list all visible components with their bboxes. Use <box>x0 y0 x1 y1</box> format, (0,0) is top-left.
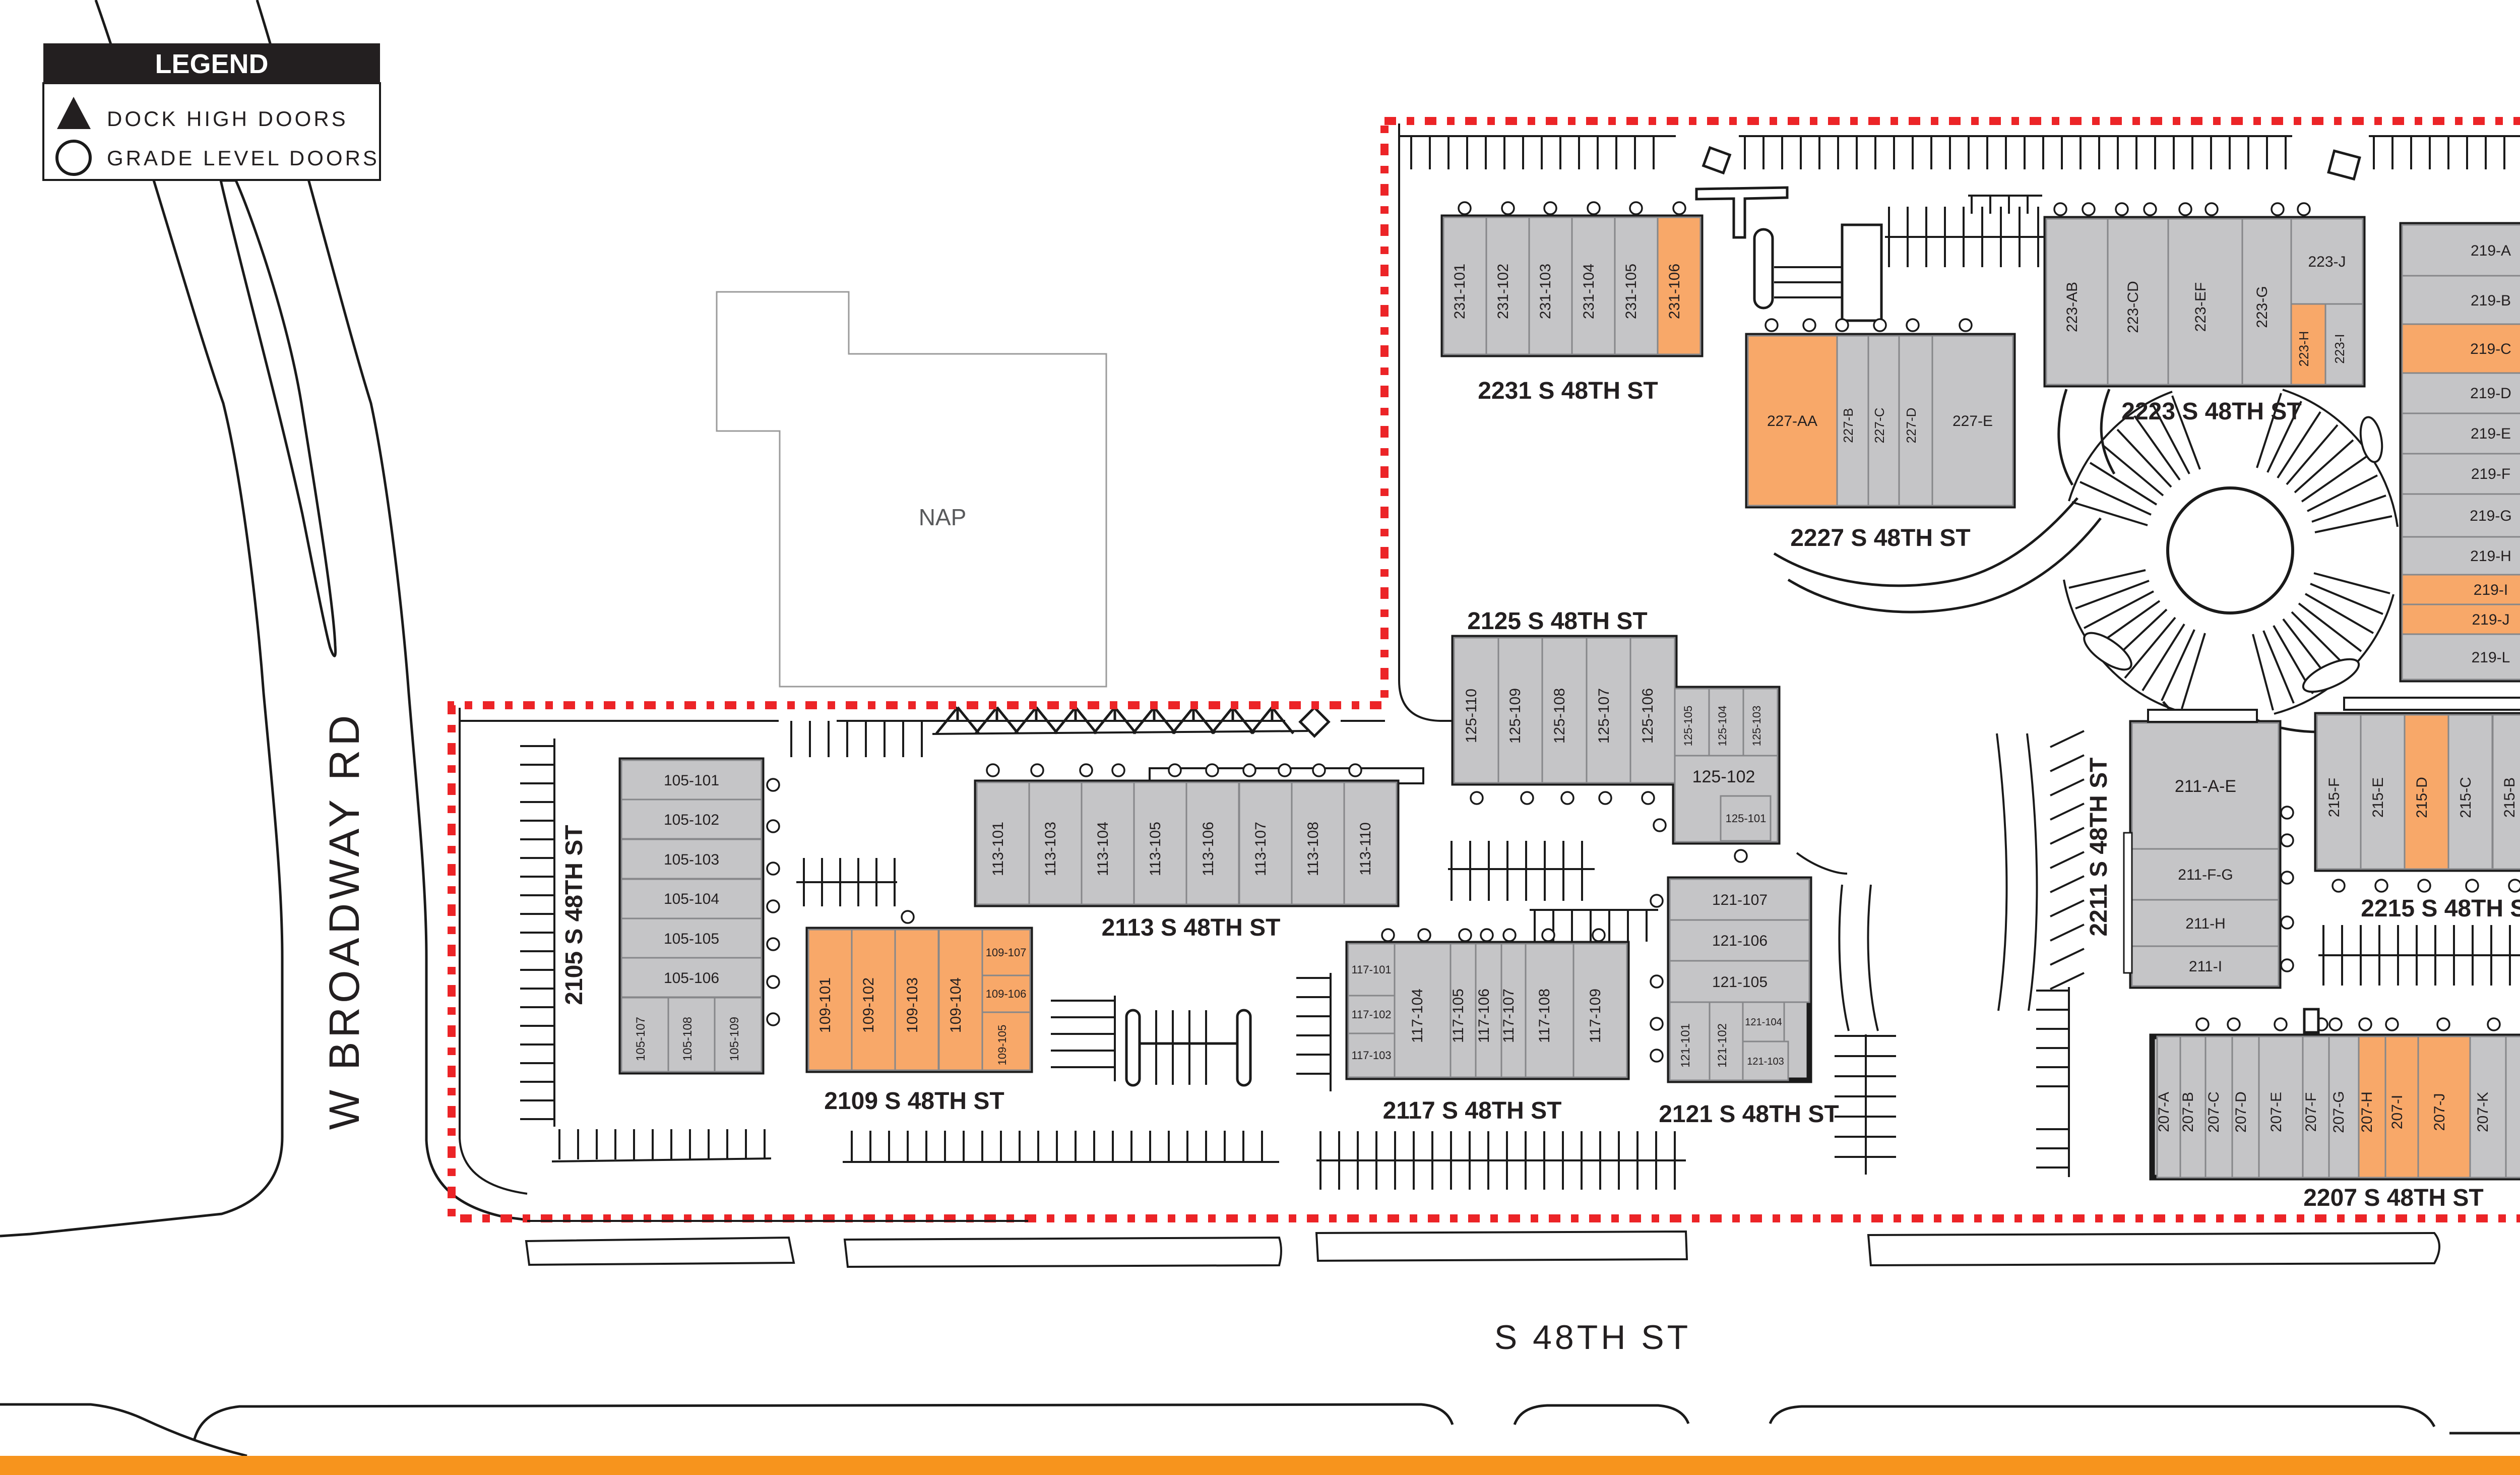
svg-text:207-B: 207-B <box>2180 1092 2196 1132</box>
svg-text:211-I: 211-I <box>2189 958 2222 975</box>
svg-text:2227 S 48TH ST: 2227 S 48TH ST <box>1790 525 1971 551</box>
svg-text:113-108: 113-108 <box>1305 822 1321 876</box>
svg-text:125-109: 125-109 <box>1507 688 1524 744</box>
svg-text:NAP: NAP <box>919 504 967 530</box>
svg-text:113-101: 113-101 <box>990 822 1006 876</box>
svg-text:105-109: 105-109 <box>728 1017 741 1061</box>
svg-text:105-105: 105-105 <box>664 931 719 947</box>
svg-text:117-106: 117-106 <box>1476 989 1492 1043</box>
svg-text:117-105: 117-105 <box>1450 989 1467 1043</box>
svg-text:219-B: 219-B <box>2471 292 2511 309</box>
svg-text:105-101: 105-101 <box>664 772 719 789</box>
svg-text:105-104: 105-104 <box>664 891 719 907</box>
svg-text:125-108: 125-108 <box>1551 688 1568 744</box>
svg-text:109-107: 109-107 <box>986 946 1027 959</box>
svg-text:219-J: 219-J <box>2472 611 2509 628</box>
svg-text:215-F: 215-F <box>2326 778 2343 817</box>
svg-text:113-110: 113-110 <box>1357 822 1374 876</box>
svg-text:105-102: 105-102 <box>664 812 719 828</box>
svg-text:223-G: 223-G <box>2254 286 2271 328</box>
svg-text:215-D: 215-D <box>2414 777 2430 818</box>
svg-text:207-H: 207-H <box>2359 1091 2375 1133</box>
svg-text:117-108: 117-108 <box>1536 989 1553 1043</box>
svg-text:207-K: 207-K <box>2475 1092 2491 1132</box>
svg-text:227-D: 227-D <box>1904 408 1919 444</box>
svg-text:121-104: 121-104 <box>1745 1017 1782 1028</box>
svg-text:207-D: 207-D <box>2233 1091 2249 1133</box>
svg-text:223-I: 223-I <box>2332 334 2347 363</box>
svg-text:121-106: 121-106 <box>1712 933 1768 949</box>
svg-text:125-107: 125-107 <box>1596 688 1612 744</box>
svg-text:227-B: 227-B <box>1841 408 1856 443</box>
svg-text:109-106: 109-106 <box>986 988 1027 1000</box>
svg-text:2121 S 48TH ST: 2121 S 48TH ST <box>1659 1101 1839 1128</box>
svg-text:207-E: 207-E <box>2268 1092 2285 1132</box>
svg-text:2117 S 48TH ST: 2117 S 48TH ST <box>1383 1097 1562 1124</box>
svg-text:219-D: 219-D <box>2470 385 2511 402</box>
svg-text:113-104: 113-104 <box>1095 822 1111 876</box>
svg-text:109-101: 109-101 <box>817 977 834 1033</box>
svg-text:207-J: 207-J <box>2431 1093 2448 1131</box>
svg-text:105-107: 105-107 <box>634 1017 648 1061</box>
svg-text:109-105: 109-105 <box>996 1025 1009 1066</box>
svg-text:S 48TH ST: S 48TH ST <box>1494 1318 1691 1357</box>
svg-text:2211 S 48TH ST: 2211 S 48TH ST <box>2086 758 2112 937</box>
svg-text:211-F-G: 211-F-G <box>2178 867 2233 883</box>
svg-text:2207 S 48TH ST: 2207 S 48TH ST <box>2303 1185 2484 1211</box>
svg-text:231-104: 231-104 <box>1581 264 1597 319</box>
svg-text:231-103: 231-103 <box>1537 264 1554 319</box>
svg-text:219-F: 219-F <box>2471 466 2510 482</box>
svg-text:105-106: 105-106 <box>664 970 719 987</box>
svg-text:113-106: 113-106 <box>1200 822 1217 876</box>
svg-text:121-103: 121-103 <box>1747 1056 1784 1067</box>
svg-text:227-E: 227-E <box>1952 413 1993 429</box>
svg-text:219-G: 219-G <box>2470 508 2511 524</box>
svg-text:207-I: 207-I <box>2389 1095 2406 1129</box>
svg-text:GRADE LEVEL DOORS: GRADE LEVEL DOORS <box>107 146 380 170</box>
svg-text:117-102: 117-102 <box>1351 1008 1391 1021</box>
svg-text:231-106: 231-106 <box>1666 264 1683 319</box>
svg-text:223-H: 223-H <box>2296 331 2311 367</box>
svg-text:109-102: 109-102 <box>860 977 877 1033</box>
svg-text:215-E: 215-E <box>2370 777 2386 818</box>
svg-text:223-EF: 223-EF <box>2192 282 2209 332</box>
svg-text:121-101: 121-101 <box>1679 1023 1692 1068</box>
svg-text:2231 S 48TH ST: 2231 S 48TH ST <box>1478 378 1658 404</box>
svg-text:207-F: 207-F <box>2303 1092 2319 1132</box>
svg-text:117-109: 117-109 <box>1587 989 1604 1043</box>
svg-text:231-101: 231-101 <box>1452 264 1468 319</box>
svg-text:223-AB: 223-AB <box>2064 282 2081 332</box>
svg-text:227-AA: 227-AA <box>1767 413 1817 429</box>
svg-text:219-A: 219-A <box>2471 242 2511 259</box>
svg-text:117-103: 117-103 <box>1351 1049 1391 1062</box>
svg-text:219-C: 219-C <box>2470 341 2511 357</box>
svg-text:215-C: 215-C <box>2458 777 2474 818</box>
svg-text:207-C: 207-C <box>2206 1091 2222 1133</box>
svg-text:211-A-E: 211-A-E <box>2175 777 2236 796</box>
svg-text:113-107: 113-107 <box>1252 822 1269 876</box>
svg-text:125-106: 125-106 <box>1640 688 1656 744</box>
svg-text:2125 S 48TH ST: 2125 S 48TH ST <box>1467 608 1648 635</box>
svg-text:207-G: 207-G <box>2330 1091 2347 1133</box>
svg-text:215-B: 215-B <box>2501 777 2518 818</box>
svg-text:211-H: 211-H <box>2185 915 2225 932</box>
svg-text:2215 S 48TH ST: 2215 S 48TH ST <box>2361 895 2520 922</box>
svg-text:2109 S 48TH ST: 2109 S 48TH ST <box>824 1088 1004 1115</box>
svg-text:105-103: 105-103 <box>664 851 719 868</box>
svg-text:W BROADWAY RD: W BROADWAY RD <box>321 711 368 1130</box>
svg-text:207-A: 207-A <box>2156 1092 2172 1132</box>
svg-text:125-102: 125-102 <box>1692 767 1755 786</box>
svg-text:125-104: 125-104 <box>1716 706 1729 747</box>
svg-text:117-104: 117-104 <box>1409 989 1426 1043</box>
svg-text:109-103: 109-103 <box>904 977 921 1033</box>
svg-text:219-H: 219-H <box>2470 548 2511 565</box>
svg-text:2223 S 48TH ST: 2223 S 48TH ST <box>2121 398 2302 425</box>
svg-text:2113 S 48TH ST: 2113 S 48TH ST <box>1102 914 1281 941</box>
svg-text:227-C: 227-C <box>1872 408 1887 444</box>
svg-text:LEGEND: LEGEND <box>155 49 268 79</box>
svg-text:125-101: 125-101 <box>1726 812 1767 825</box>
svg-text:231-105: 231-105 <box>1623 264 1640 319</box>
svg-text:121-105: 121-105 <box>1712 974 1768 991</box>
svg-text:DOCK HIGH DOORS: DOCK HIGH DOORS <box>107 107 348 131</box>
svg-text:105-108: 105-108 <box>681 1017 695 1061</box>
svg-text:121-107: 121-107 <box>1712 892 1768 908</box>
svg-text:109-104: 109-104 <box>948 977 964 1033</box>
svg-text:231-102: 231-102 <box>1495 264 1511 319</box>
svg-text:125-105: 125-105 <box>1682 706 1694 747</box>
svg-text:2105 S 48TH ST: 2105 S 48TH ST <box>561 825 588 1005</box>
svg-text:223-CD: 223-CD <box>2125 281 2141 333</box>
svg-text:113-103: 113-103 <box>1042 822 1059 876</box>
svg-text:219-I: 219-I <box>2474 582 2508 598</box>
svg-text:121-102: 121-102 <box>1716 1023 1729 1068</box>
svg-text:117-101: 117-101 <box>1351 963 1391 976</box>
svg-text:219-E: 219-E <box>2471 425 2511 442</box>
svg-text:219-L: 219-L <box>2472 649 2510 666</box>
svg-text:113-105: 113-105 <box>1147 822 1164 876</box>
svg-text:117-107: 117-107 <box>1500 989 1517 1043</box>
svg-text:223-J: 223-J <box>2308 254 2346 270</box>
svg-text:125-110: 125-110 <box>1463 689 1480 743</box>
svg-text:125-103: 125-103 <box>1750 706 1763 747</box>
